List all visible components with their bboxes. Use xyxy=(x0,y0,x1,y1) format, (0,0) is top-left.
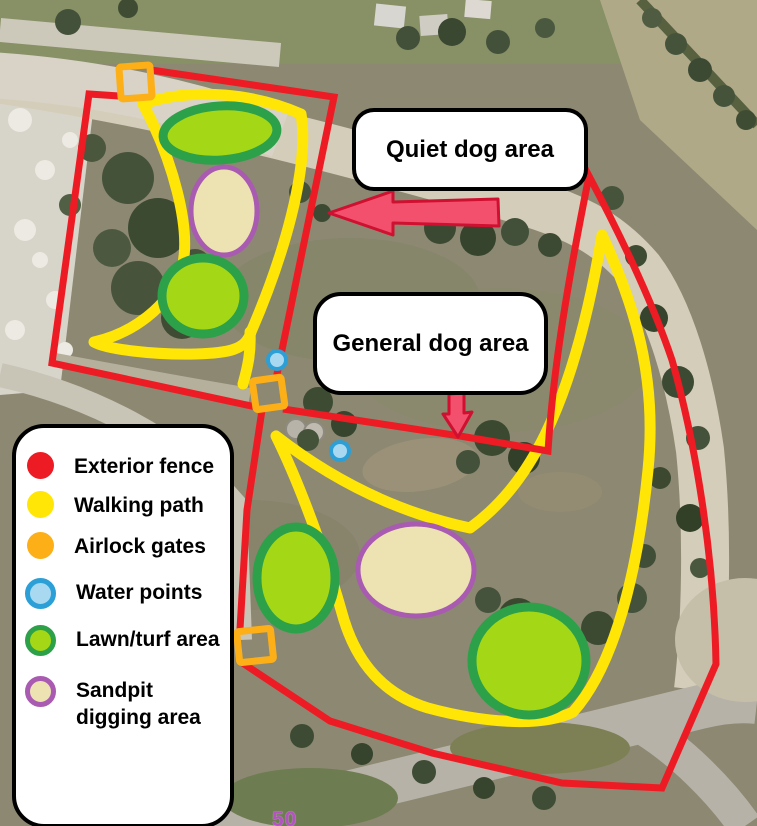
water-points-swatch xyxy=(25,578,56,609)
sandpit-digging-area xyxy=(358,524,474,616)
walking-path-swatch xyxy=(27,491,54,518)
legend-item-airlock-gates: Airlock gates xyxy=(16,532,224,560)
airlock-gates-swatch xyxy=(27,532,54,559)
legend-item-sandpit: Sandpit digging area xyxy=(16,676,226,732)
quiet-dog-area-label: Quiet dog area xyxy=(352,108,588,191)
legend-item-walking-path: Walking path xyxy=(16,491,224,519)
area-label-text: General dog area xyxy=(332,330,528,358)
lawn-turf-swatch xyxy=(25,625,56,656)
exterior-fence-swatch xyxy=(27,452,54,479)
legend-item-water-points: Water points xyxy=(16,578,226,609)
lawn-turf-area xyxy=(257,527,335,629)
legend-item-lawn-turf: Lawn/turf area xyxy=(16,625,226,656)
area-label-text: Quiet dog area xyxy=(386,136,554,164)
sandpit-swatch xyxy=(25,676,56,707)
sandpit-digging-area xyxy=(191,167,257,255)
legend-item-exterior-fence: Exterior fence xyxy=(16,452,224,480)
lawn-turf-area xyxy=(162,258,244,334)
legend: Exterior fence Walking path Airlock gate… xyxy=(12,424,234,826)
lawn-turf-area xyxy=(472,607,586,715)
general-dog-area-label: General dog area xyxy=(313,292,548,395)
road-marking-50: 50 xyxy=(272,808,297,826)
dog-park-map: Quiet dog area General dog area Exterior… xyxy=(0,0,757,826)
water-point xyxy=(268,351,286,369)
water-point xyxy=(331,442,349,460)
